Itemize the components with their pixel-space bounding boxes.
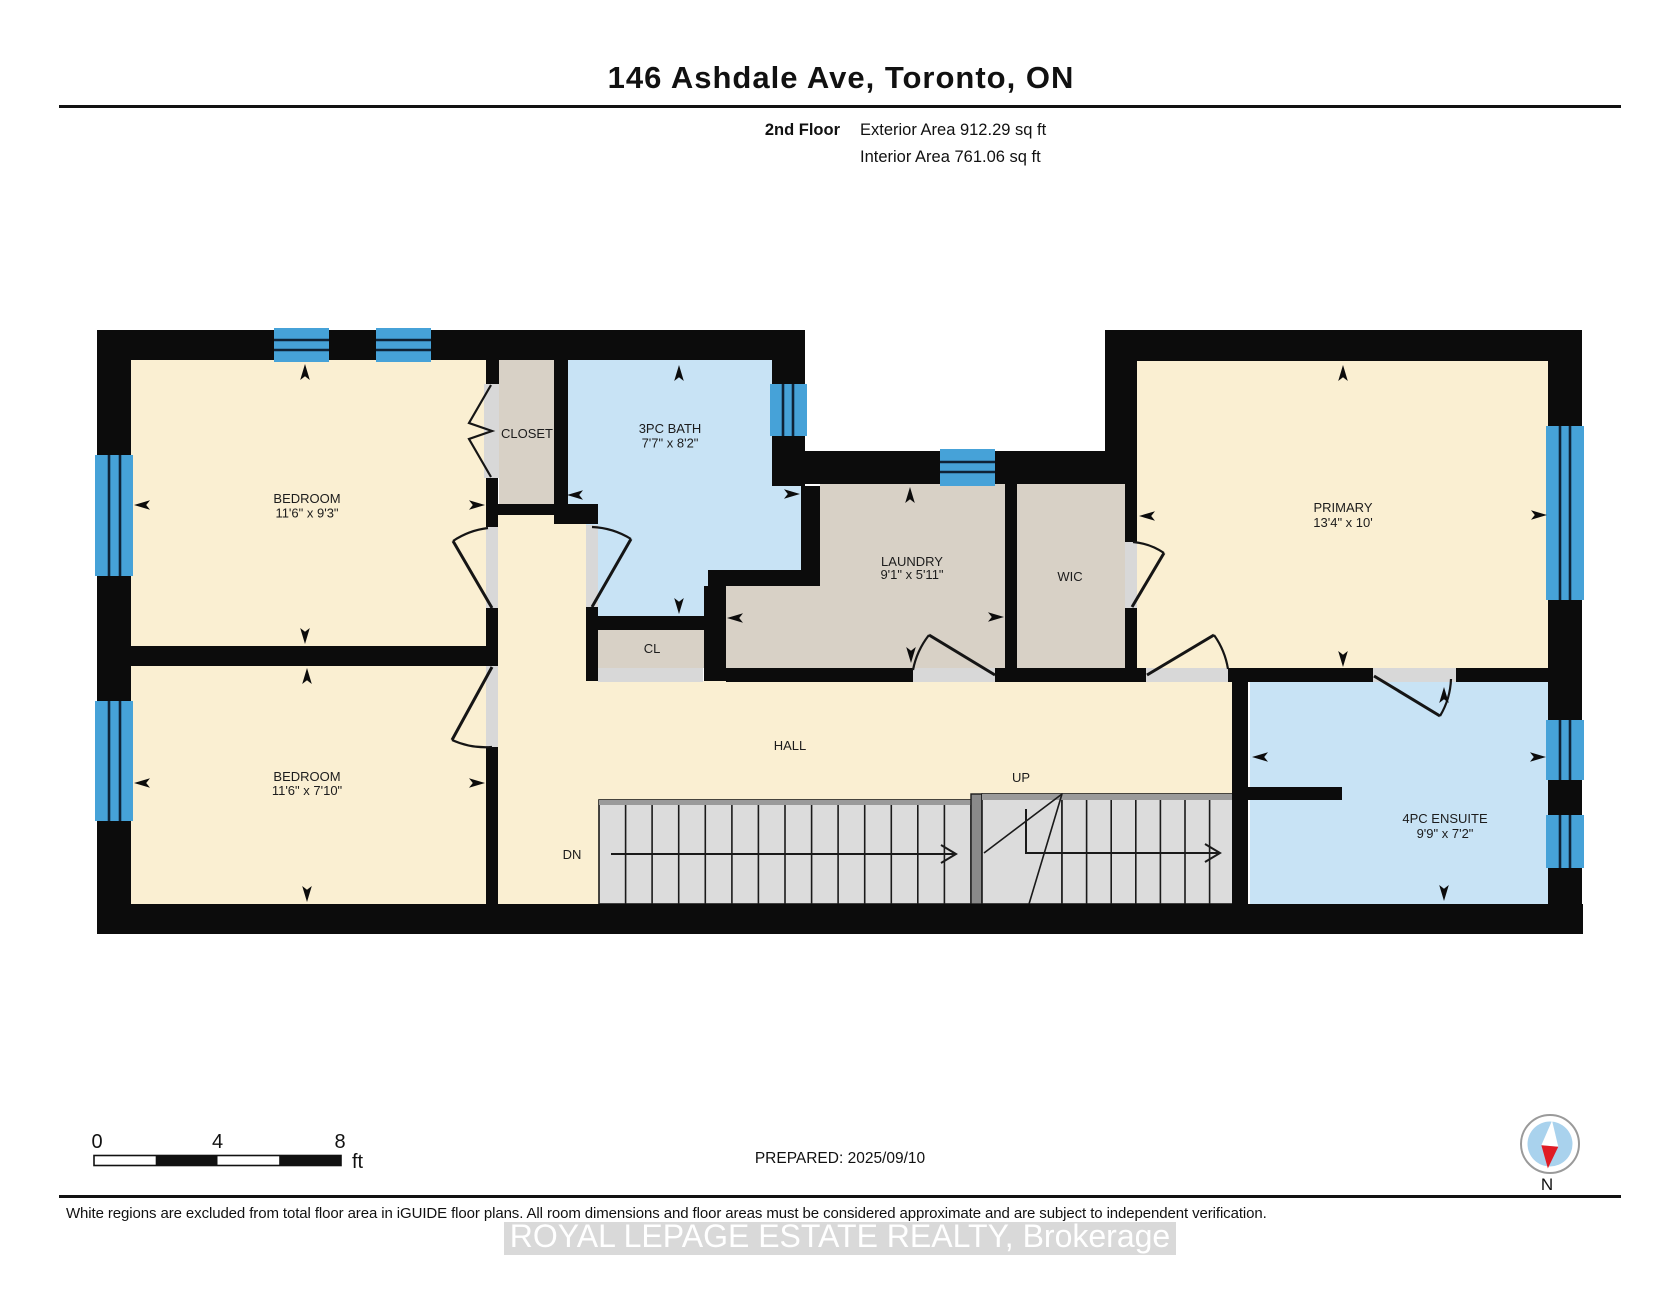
svg-text:N: N: [1541, 1175, 1553, 1194]
svg-text:HALL: HALL: [774, 738, 807, 753]
svg-text:Interior Area 761.06 sq ft: Interior Area 761.06 sq ft: [860, 148, 1041, 166]
svg-text:0: 0: [91, 1131, 102, 1153]
svg-text:Exterior Area 912.29 sq ft: Exterior Area 912.29 sq ft: [860, 121, 1047, 139]
svg-text:13'4" x 10': 13'4" x 10': [1313, 515, 1372, 530]
svg-text:9'1" x 5'11": 9'1" x 5'11": [880, 567, 943, 582]
svg-text:ROYAL LEPAGE ESTATE REALTY, Br: ROYAL LEPAGE ESTATE REALTY, Brokerage: [510, 1218, 1170, 1254]
svg-text:PREPARED: 2025/09/10: PREPARED: 2025/09/10: [755, 1150, 926, 1167]
svg-text:2nd Floor: 2nd Floor: [765, 121, 841, 139]
svg-text:11'6" x 7'10": 11'6" x 7'10": [272, 783, 343, 798]
svg-text:WIC: WIC: [1057, 569, 1082, 584]
svg-text:4PC ENSUITE: 4PC ENSUITE: [1402, 811, 1488, 826]
svg-text:BEDROOM: BEDROOM: [273, 769, 340, 784]
svg-text:11'6" x 9'3": 11'6" x 9'3": [275, 506, 338, 521]
svg-text:7'7" x 8'2": 7'7" x 8'2": [642, 436, 699, 451]
svg-text:UP: UP: [1012, 770, 1030, 785]
svg-text:ft: ft: [352, 1151, 364, 1173]
svg-text:CL: CL: [644, 641, 661, 656]
svg-text:DN: DN: [563, 847, 582, 862]
svg-text:PRIMARY: PRIMARY: [1314, 500, 1373, 515]
svg-text:CLOSET: CLOSET: [501, 426, 553, 441]
svg-text:4: 4: [212, 1131, 223, 1153]
svg-text:BEDROOM: BEDROOM: [273, 491, 340, 506]
svg-text:8: 8: [334, 1131, 345, 1153]
svg-text:146 Ashdale Ave, Toronto, ON: 146 Ashdale Ave, Toronto, ON: [608, 60, 1075, 95]
svg-text:3PC BATH: 3PC BATH: [639, 421, 702, 436]
svg-text:9'9" x 7'2": 9'9" x 7'2": [1417, 826, 1474, 841]
